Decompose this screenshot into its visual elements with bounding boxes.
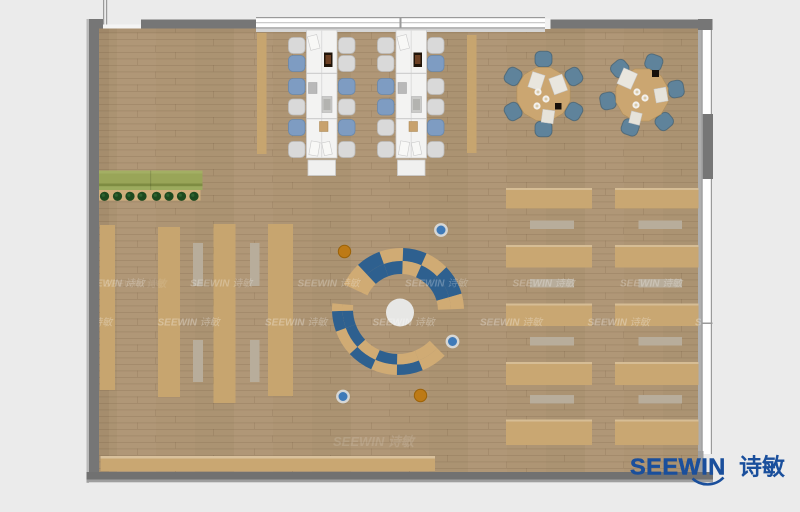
svg-text:SEEWIN 诗敏: SEEWIN 诗敏	[190, 278, 254, 290]
svg-text:SEEWIN 诗敏: SEEWIN 诗敏	[588, 317, 652, 329]
svg-text:SEEWIN 诗敏: SEEWIN 诗敏	[298, 278, 362, 290]
svg-text:SEEWIN 诗敏: SEEWIN 诗敏	[158, 317, 222, 329]
svg-text:SEEWIN 诗敏: SEEWIN 诗敏	[373, 317, 437, 329]
svg-text:SEEWIN 诗敏: SEEWIN 诗敏	[480, 317, 544, 329]
svg-text:SEEWIN 诗敏: SEEWIN 诗敏	[333, 434, 416, 449]
svg-text:诗敏: 诗敏	[739, 454, 785, 480]
svg-text:SEEWIN: SEEWIN	[630, 454, 726, 480]
svg-text:SEEWIN 诗敏: SEEWIN 诗敏	[513, 278, 577, 290]
svg-text:SEEWIN 诗敏: SEEWIN 诗敏	[265, 317, 329, 329]
svg-text:SEEWIN 诗敏: SEEWIN 诗敏	[620, 278, 684, 290]
svg-text:SEEWIN 诗敏: SEEWIN 诗敏	[405, 278, 469, 290]
svg-text:SEEWIN 诗敏: SEEWIN 诗敏	[104, 278, 168, 290]
